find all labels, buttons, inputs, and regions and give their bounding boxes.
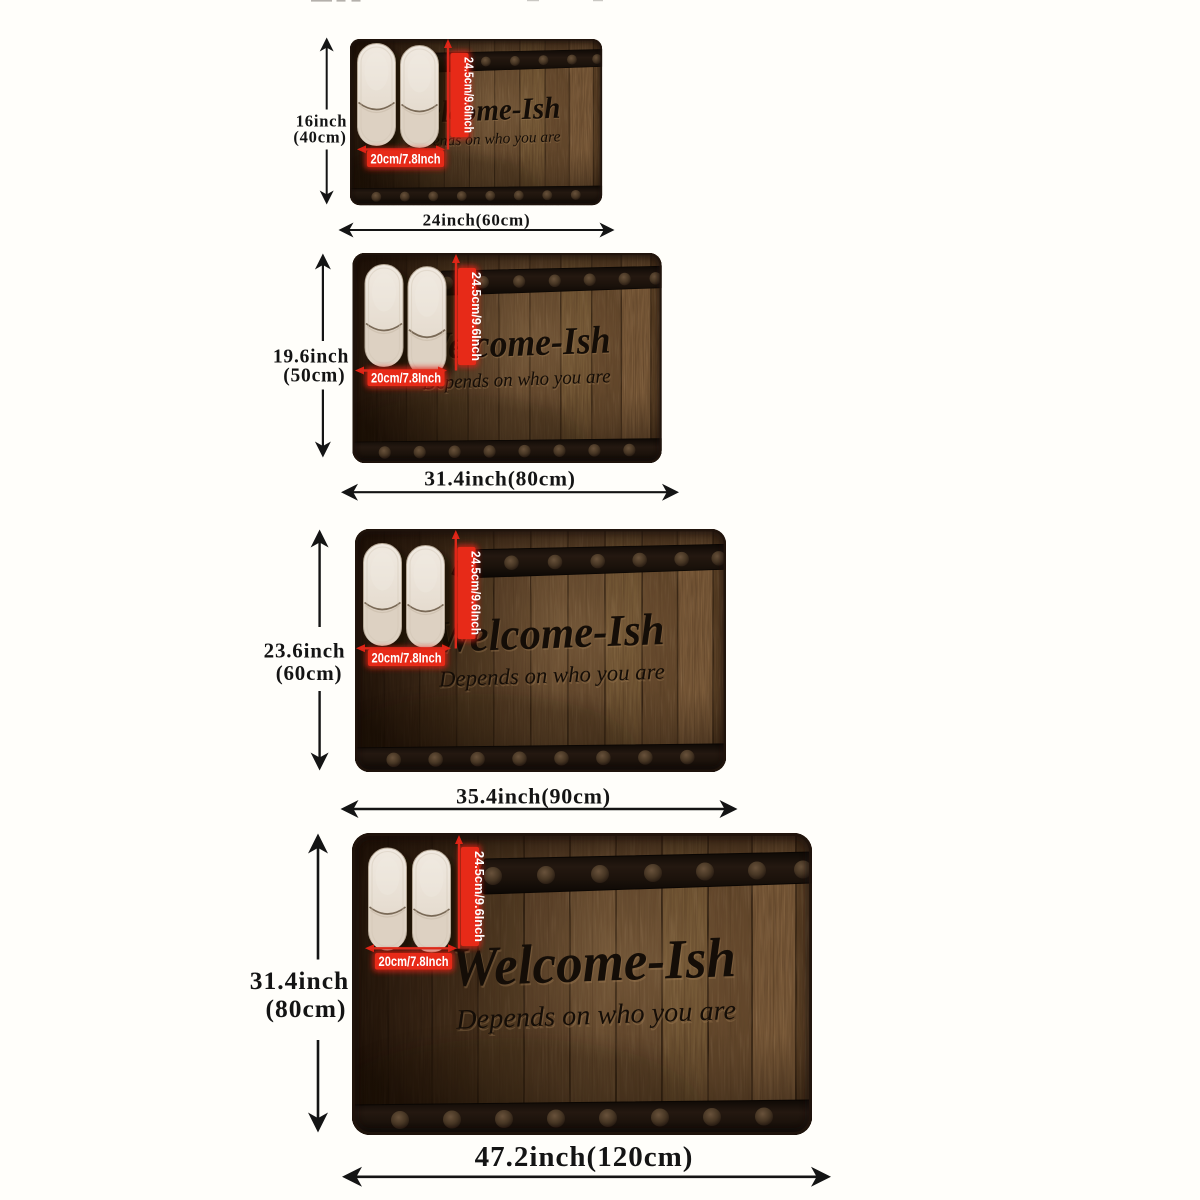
svg-text:35.4inch(90cm): 35.4inch(90cm) xyxy=(456,784,611,809)
svg-text:(40cm): (40cm) xyxy=(293,128,346,147)
svg-text:20cm/7.8Inch: 20cm/7.8Inch xyxy=(371,371,441,386)
svg-text:(50cm): (50cm) xyxy=(283,366,345,387)
svg-text:24.5cm/9.6Inch: 24.5cm/9.6Inch xyxy=(472,851,486,942)
svg-text:31.4inch: 31.4inch xyxy=(250,966,349,995)
svg-text:24.5cm/9.6Inch: 24.5cm/9.6Inch xyxy=(469,551,483,635)
svg-text:(60cm): (60cm) xyxy=(276,661,343,685)
svg-text:20cm/7.8Inch: 20cm/7.8Inch xyxy=(379,954,449,969)
svg-text:20cm/7.8Inch: 20cm/7.8Inch xyxy=(372,651,442,666)
svg-text:(80cm): (80cm) xyxy=(265,994,346,1023)
svg-text:24inch(60cm): 24inch(60cm) xyxy=(423,211,531,230)
svg-text:20cm/7.8Inch: 20cm/7.8Inch xyxy=(371,152,441,167)
svg-text:24.5cm/9.6Inch: 24.5cm/9.6Inch xyxy=(462,57,476,133)
svg-text:19.6inch: 19.6inch xyxy=(273,347,349,368)
svg-text:31.4inch(80cm): 31.4inch(80cm) xyxy=(424,467,576,491)
svg-text:47.2inch(120cm): 47.2inch(120cm) xyxy=(475,1141,694,1173)
svg-text:23.6inch: 23.6inch xyxy=(264,639,346,663)
svg-text:24.5cm/9.6Inch: 24.5cm/9.6Inch xyxy=(469,272,483,361)
